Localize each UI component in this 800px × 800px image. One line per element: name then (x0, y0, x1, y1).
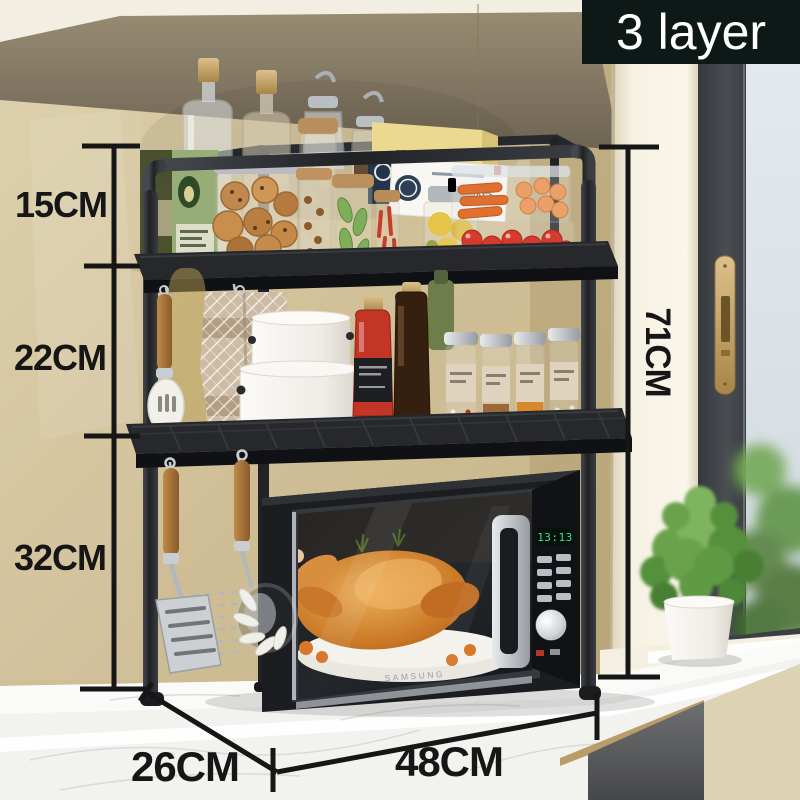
microwave-control-panel: 13:13 (532, 470, 580, 686)
dimension-label-top-tier: 15CM (11, 187, 111, 227)
dimension-label-width: 48CM (379, 741, 519, 785)
microwave-handle (492, 515, 530, 668)
microwave-display: 13:13 (537, 531, 573, 544)
window-handle (715, 256, 735, 394)
dimension-label-middle-tier: 22CM (10, 340, 110, 380)
cookie-jar (213, 158, 300, 263)
dimension-label-height: 71CM (635, 292, 675, 412)
dimension-label-bottom-tier: 32CM (10, 540, 110, 580)
product-image: Fibre flakes (0, 0, 800, 800)
layer-count-label: 3 layer (616, 3, 766, 61)
layer-count-badge: 3 layer (582, 0, 800, 64)
kitchen-scene: Fibre flakes (0, 0, 800, 800)
dimension-label-depth: 26CM (115, 746, 255, 790)
microwave: 13:13 SAMSUNG (262, 470, 580, 712)
